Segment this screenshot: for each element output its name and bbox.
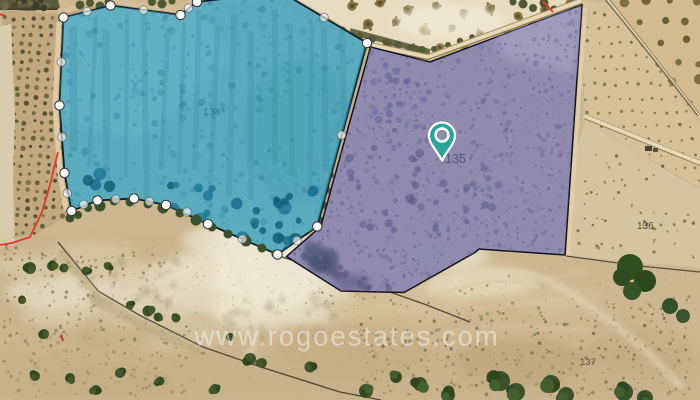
svg-text:www.rogoestates.com: www.rogoestates.com xyxy=(193,321,499,352)
svg-text:136: 136 xyxy=(637,221,654,232)
svg-text:134: 134 xyxy=(203,106,221,118)
svg-text:137: 137 xyxy=(580,357,596,368)
svg-text:135: 135 xyxy=(445,152,466,166)
